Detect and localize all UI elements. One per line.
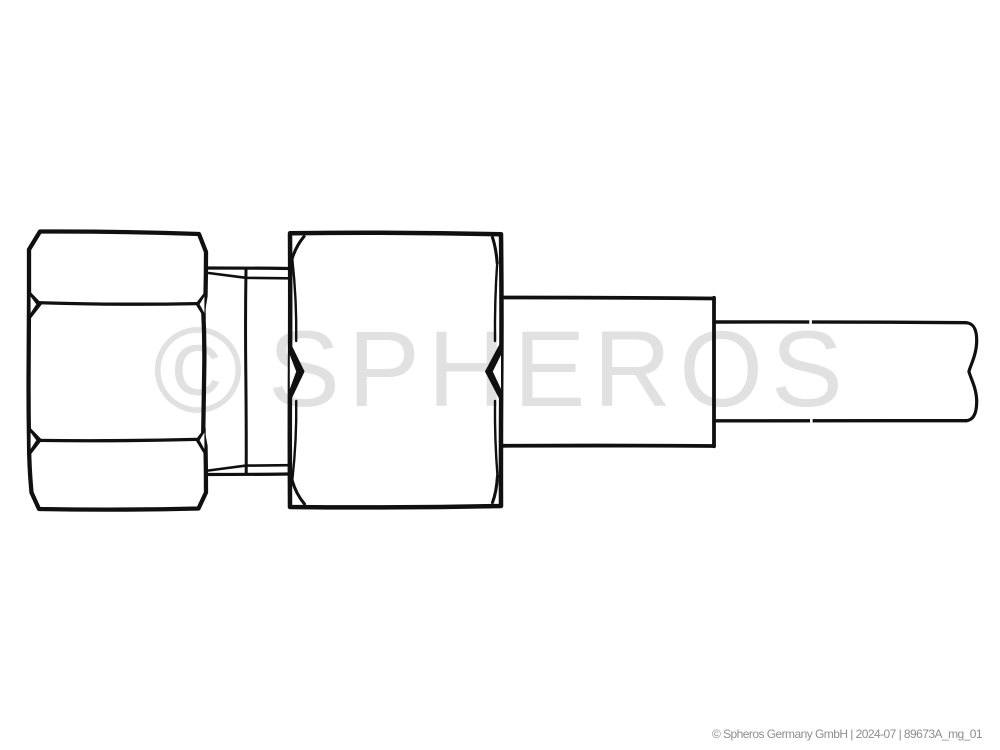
- svg-text:© Spheros Germany GmbH | 2024-: © Spheros Germany GmbH | 2024-07 | 89673…: [712, 727, 983, 741]
- svg-text:SPHEROS: SPHEROS: [268, 308, 851, 429]
- svg-text:©: ©: [153, 302, 243, 438]
